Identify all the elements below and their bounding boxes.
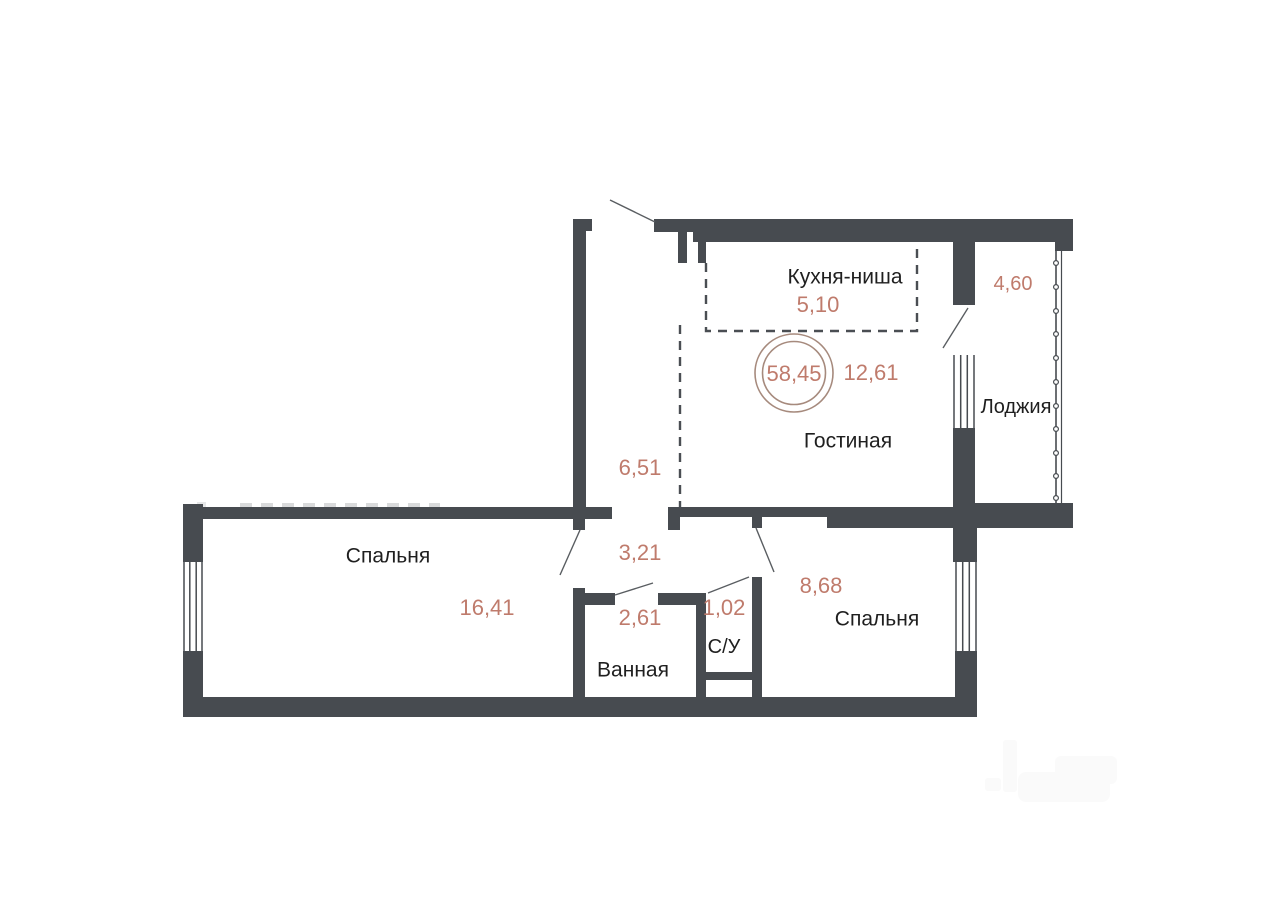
room-label-kitchen: Кухня-ниша (787, 267, 902, 288)
area-bathroom: 2,61 (619, 607, 662, 629)
room-label-wc: С/У (708, 637, 741, 657)
room-label-bedroom-left: Спальня (346, 546, 430, 567)
loggia-glazing (1054, 250, 1062, 503)
window-bedroom-left (183, 562, 203, 651)
room-label-bedroom-right: Спальня (835, 609, 919, 630)
area-kitchen: 5,10 (797, 294, 840, 316)
window-living-loggia (953, 355, 975, 428)
area-bedroom-left: 16,41 (459, 597, 514, 619)
plan-drawing (0, 0, 1280, 906)
room-label-bathroom: Ванная (597, 660, 669, 681)
room-label-loggia: Лоджия (981, 397, 1052, 417)
area-bedroom-right: 8,68 (800, 575, 843, 597)
area-living: 12,61 (843, 362, 898, 384)
floor-plan: Кухня-ниша 5,10 58,45 12,61 Гостиная 4,6… (0, 0, 1280, 906)
room-label-living: Гостиная (804, 431, 892, 452)
area-hallway: 3,21 (619, 542, 662, 564)
area-loggia: 4,60 (994, 274, 1033, 294)
watermark (985, 740, 1117, 802)
area-corridor: 6,51 (619, 457, 662, 479)
area-wc: 1,02 (703, 597, 746, 619)
total-area-value: 58,45 (766, 363, 821, 385)
window-bedroom-right (955, 562, 977, 651)
